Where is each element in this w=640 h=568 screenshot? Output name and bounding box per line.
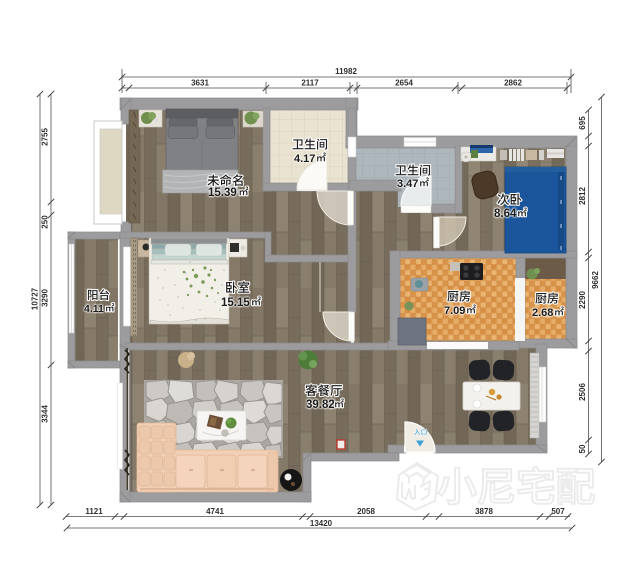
svg-text:8.64: 8.64 bbox=[494, 208, 517, 220]
svg-text:4.17: 4.17 bbox=[294, 153, 315, 165]
svg-text:2506: 2506 bbox=[578, 383, 587, 401]
svg-text:3344: 3344 bbox=[41, 405, 50, 423]
svg-text:2654: 2654 bbox=[395, 79, 413, 88]
svg-text:2117: 2117 bbox=[301, 79, 319, 88]
svg-text:2290: 2290 bbox=[578, 291, 587, 309]
svg-text:695: 695 bbox=[578, 116, 587, 130]
svg-text:3.47: 3.47 bbox=[397, 178, 418, 190]
svg-text:2755: 2755 bbox=[41, 128, 50, 146]
svg-text:10727: 10727 bbox=[31, 287, 40, 310]
svg-text:507: 507 bbox=[551, 507, 565, 516]
svg-text:11982: 11982 bbox=[335, 67, 357, 76]
svg-text:15.39: 15.39 bbox=[208, 187, 237, 199]
svg-text:50: 50 bbox=[578, 444, 587, 453]
svg-text:3631: 3631 bbox=[191, 79, 209, 88]
svg-text:2058: 2058 bbox=[357, 507, 375, 516]
svg-text:7.09: 7.09 bbox=[444, 305, 465, 317]
svg-text:2862: 2862 bbox=[504, 79, 522, 88]
svg-text:4.11: 4.11 bbox=[84, 303, 104, 315]
svg-text:3290: 3290 bbox=[41, 289, 50, 307]
svg-text:13420: 13420 bbox=[310, 519, 333, 528]
svg-text:250: 250 bbox=[41, 215, 50, 229]
svg-text:15.15: 15.15 bbox=[221, 297, 250, 309]
svg-text:2812: 2812 bbox=[578, 187, 587, 205]
svg-text:2.68: 2.68 bbox=[532, 307, 553, 319]
svg-text:9662: 9662 bbox=[591, 271, 600, 289]
svg-text:4741: 4741 bbox=[206, 507, 224, 516]
svg-text:1121: 1121 bbox=[85, 507, 103, 516]
svg-text:39.82: 39.82 bbox=[306, 399, 335, 411]
svg-text:3878: 3878 bbox=[475, 507, 493, 516]
